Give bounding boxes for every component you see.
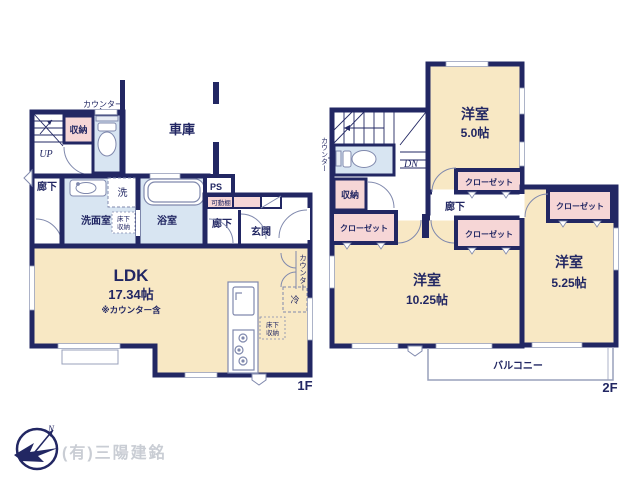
window [58,344,120,349]
vent-mark [408,346,422,356]
compass-north-label: N [47,424,55,434]
compass-needle [14,443,58,462]
kitchen-counter-icon [228,282,258,373]
entrance-hall-label: 廊下 [212,217,232,230]
window [614,228,619,270]
stairs-up-label: UP [39,149,52,160]
sink-icon-1f [70,180,106,196]
door-gap [398,216,422,221]
room-b-size: 10.25帖 [406,292,448,307]
wall-garage-stub-bottom [213,142,219,179]
storage-1f-label: 収納 [69,124,87,135]
wall-garage-stub-top [213,82,219,104]
window [436,344,492,349]
floor-plan-drawing: 車庫 UP 収納 カウンター 廊下 [0,0,640,480]
storage-2f-label: 収納 [341,189,359,200]
compass-icon: N [14,424,58,469]
entrance-shelf [233,196,261,208]
door-gap [432,190,454,195]
movable-shelf-label: 可動棚 [211,198,231,207]
deck-step [62,350,118,364]
room-b-label: 洋室 [413,272,441,288]
room-c-label: 洋室 [555,254,583,270]
closet-door-mark [502,192,510,198]
underfloor-kitchen-line2: 収納 [266,328,279,337]
window [95,110,117,115]
window [330,256,335,288]
door-gap [520,194,525,218]
ldk-size: 17.34帖 [108,287,154,302]
door-gap [430,216,454,221]
bath-door-gap [136,210,140,236]
wall-hall-genkan [238,210,241,247]
exterior-door-mark [24,170,32,186]
window [520,88,525,114]
counter-top-label-1f: カウンター [83,100,123,109]
room-a-label: 洋室 [461,106,489,122]
counter-side-label-2f: カウンター [321,137,329,172]
room-a-size: 5.0帖 [461,125,490,140]
floor2-label: 2F [602,380,617,395]
washroom-label: 洗面室 [81,214,111,227]
floor-plan-1f: 車庫 UP 収納 カウンター 廊下 [24,80,313,393]
wall-door-post [422,214,429,238]
counter-side-label-1f: カウンター [299,254,308,292]
window [30,266,35,310]
hallway-2f-label: 廊下 [445,200,465,213]
bathroom-label: 浴室 [157,214,177,227]
vent-mark [252,374,266,385]
closet-door-mark [468,192,476,198]
window [150,174,180,179]
window [308,298,313,340]
floor-plan-page: 車庫 UP 収納 カウンター 廊下 [0,0,640,480]
floor-plan-2f: DN カウンター 収納 洋室 5.0帖 クローゼット 洋室 10.25帖 [321,62,619,396]
closet-room-b-left-label: クローゼット [340,223,388,233]
ldk-note: ※カウンター含 [101,305,161,315]
entrance-door-gap [305,208,310,240]
garage-label: 車庫 [169,122,195,137]
floor1-label: 1F [297,378,312,393]
window [520,142,525,166]
washer-label: 洗 [118,187,128,199]
ldk-label: LDK [114,266,150,285]
bathtub-icon [144,179,204,205]
window [532,343,582,348]
stairs-down-label: DN [403,159,419,170]
entrance-label: 玄関 [251,225,271,238]
room-c-size: 5.25帖 [551,275,586,290]
window [446,62,488,67]
ps-label: PS [210,182,222,192]
hallway-1f-label: 廊下 [37,180,57,193]
underfloor-washroom-line1: 床下 [117,214,131,223]
company-watermark: (有)三陽建銘 [62,443,167,462]
window [352,344,398,349]
window [185,373,217,378]
underfloor-kitchen-line1: 床下 [266,320,280,329]
closet-room-c-label: クローゼット [556,201,604,211]
balcony-label: バルコニー [493,360,543,372]
fridge-label: 冷 [290,294,299,305]
closet-room-b-right-label: クローゼット [465,229,513,239]
closet-room-a-label: クローゼット [465,177,513,187]
underfloor-washroom-line2: 収納 [117,222,130,231]
